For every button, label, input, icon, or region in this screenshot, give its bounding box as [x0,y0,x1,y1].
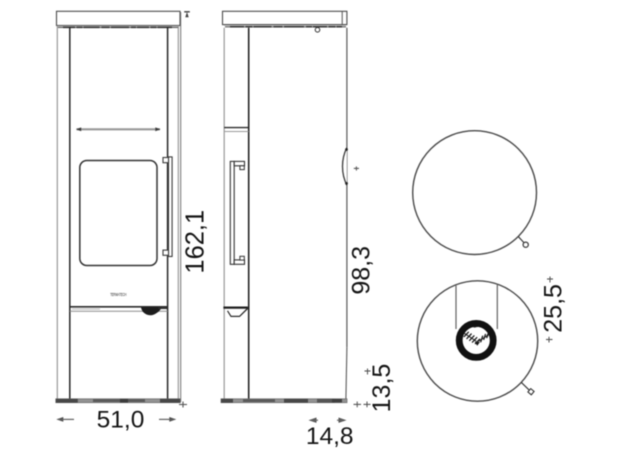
svg-text:14,8: 14,8 [306,423,354,450]
svg-text:51,0: 51,0 [97,407,145,434]
svg-text:25,5: 25,5 [540,284,568,333]
svg-text:TERMATECH: TERMATECH [110,292,126,298]
svg-text:13,5: 13,5 [368,364,396,413]
svg-text:98,3: 98,3 [347,246,375,295]
svg-text:162,1: 162,1 [181,210,209,274]
